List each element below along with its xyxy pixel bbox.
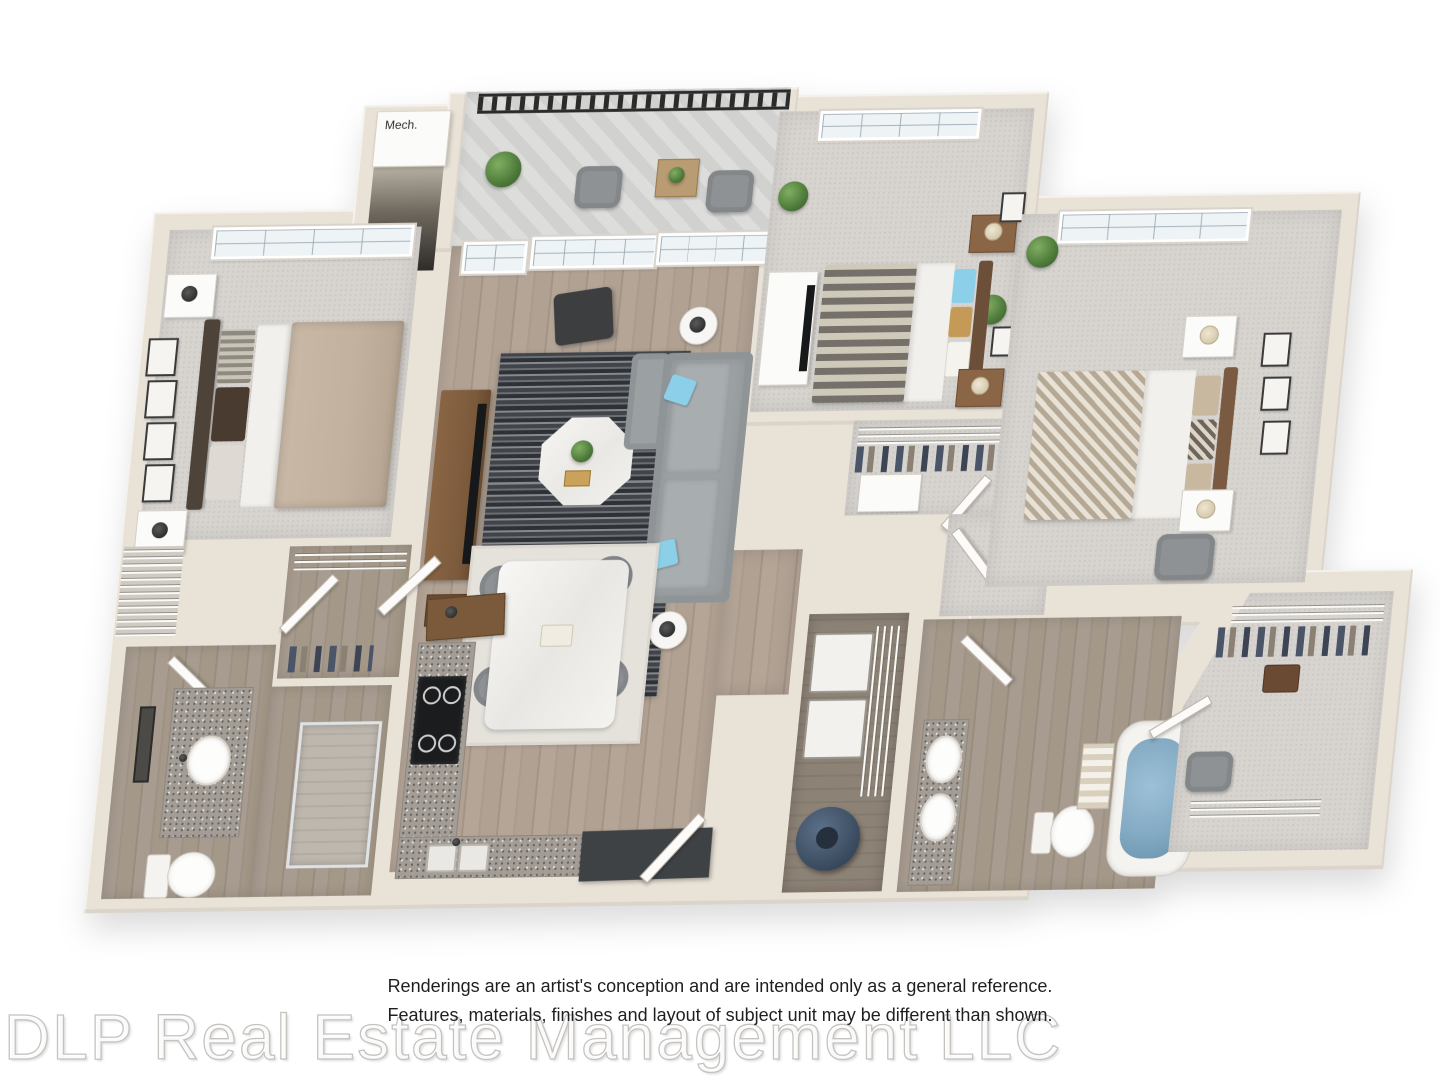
bedroom-2-window [818,109,982,141]
coffee-table-tray [564,470,592,486]
kitchen-sink [457,844,490,872]
bedroom-3-window [1057,209,1251,244]
dryer [802,698,868,759]
bedroom-1-window [211,225,415,260]
balcony-chair [705,170,755,213]
sofa-cushion [653,478,720,589]
walk-in-closet-2-shoe-shelf [1190,798,1322,818]
bedroom-3-wall-art [1260,376,1291,410]
mech-closet: Mech. [372,110,452,167]
bedroom-3-wall-art [1260,332,1291,366]
hall-closet-dresser [857,474,923,513]
closet-luggage [1262,664,1301,693]
hall-closet-clothes [855,444,1008,472]
bedroom-2-duvet [812,264,918,403]
bedroom-1-pillow [205,445,244,500]
balcony-chair [573,166,623,209]
bedroom-1-wall-art [145,338,179,376]
floorplan-3d: Mech. [106,202,1335,909]
kitchen-sink [425,844,458,872]
living-room-window [656,232,775,266]
dining-centerpiece [540,624,574,646]
washer [809,632,875,693]
bedroom-1-duvet [274,321,405,509]
bedroom-2-tan-pillow [948,307,973,337]
bedroom-1-wall-art [144,380,178,418]
lounge-chair [553,286,613,346]
bathroom-1-shower [286,721,383,868]
balcony-french-door [461,241,528,274]
living-room-window [529,235,658,269]
bedroom-1-wall-art [143,422,177,460]
walk-in-closet-2-clothes [1216,625,1379,657]
disclaimer-line-2: Features, materials, finishes and layout… [0,1005,1440,1026]
walk-in-closet-2-shelf [1231,601,1385,623]
bedroom-3-pillow [1187,419,1217,459]
bedroom-1-pillow [211,387,250,442]
disclaimer-line-1: Renderings are an artist's conception an… [0,976,1440,997]
shower-curtain [1077,743,1116,810]
bedroom-1-pillow [216,329,255,384]
closet-cushion [1184,751,1234,792]
linen-closet [115,546,184,637]
bedroom-1-wall-art [142,464,176,502]
bedroom-3-pillow [1192,375,1222,415]
bedroom-3-wall-art [1260,420,1291,454]
kitchen-counter-bottom [395,834,591,879]
walk-in-closet-1-clothes [287,645,374,672]
bedroom-2-blue-pillow [951,269,976,303]
bedroom-3-chair [1153,533,1216,580]
coffee-bar [426,593,506,641]
walk-in-closet-1-shelf [294,551,408,571]
floorplan-screenshot: Mech. [0,0,1440,1080]
mech-closet-label: Mech. [384,118,418,132]
bedroom-3-duvet [1024,370,1147,520]
